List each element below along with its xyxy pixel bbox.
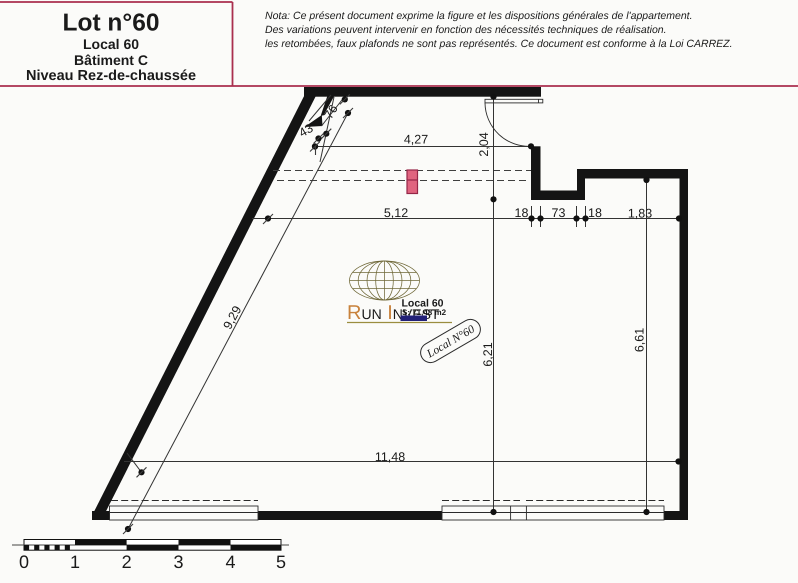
svg-text:6,61: 6,61 <box>633 328 647 352</box>
svg-text:6,21: 6,21 <box>481 342 495 366</box>
svg-text:73: 73 <box>552 206 566 220</box>
svg-text:4: 4 <box>225 552 235 572</box>
svg-text:Niveau Rez-de-chaussée: Niveau Rez-de-chaussée <box>26 68 196 84</box>
svg-text:18: 18 <box>588 206 602 220</box>
svg-text:les retombées, faux plafonds n: les retombées, faux plafonds ne sont pas… <box>265 38 733 50</box>
svg-text:4,27: 4,27 <box>404 133 428 147</box>
svg-text:1,83: 1,83 <box>628 207 652 221</box>
svg-text:2: 2 <box>122 552 132 572</box>
svg-text:1: 1 <box>70 552 80 572</box>
svg-text:Des variations peuvent interve: Des variations peuvent intervenir en fon… <box>265 24 667 36</box>
svg-text:Nota: Ce présent document expr: Nota: Ce présent document exprime la fig… <box>265 10 693 22</box>
svg-text:11,48: 11,48 <box>375 450 405 464</box>
svg-text:0: 0 <box>19 552 29 572</box>
svg-text:18: 18 <box>515 206 529 220</box>
svg-text:3: 3 <box>173 552 183 572</box>
svg-text:2,04: 2,04 <box>477 132 491 156</box>
svg-text:Local 60: Local 60 <box>83 36 139 52</box>
svg-text:Lot n°60: Lot n°60 <box>63 10 160 37</box>
svg-text:Bâtiment C: Bâtiment C <box>74 52 148 68</box>
svg-text:5,12: 5,12 <box>384 206 408 220</box>
svg-text:5: 5 <box>276 552 286 572</box>
